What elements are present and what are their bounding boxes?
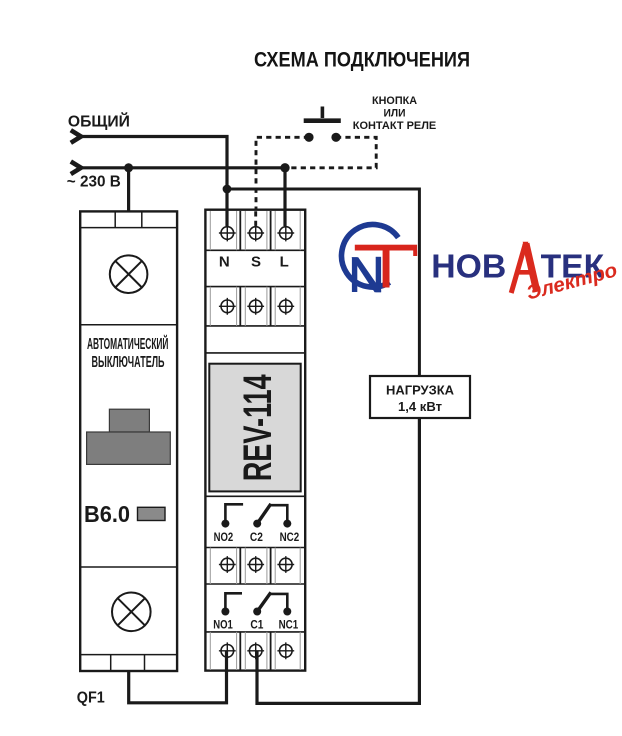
svg-text:КНОПКА: КНОПКА <box>372 95 417 107</box>
svg-text:ОБЩИЙ: ОБЩИЙ <box>68 111 130 130</box>
svg-text:C1: C1 <box>250 619 264 631</box>
svg-text:B6.0: B6.0 <box>84 501 130 527</box>
svg-text:NC2: NC2 <box>280 532 300 544</box>
svg-text:НАГРУЗКА: НАГРУЗКА <box>386 384 454 398</box>
svg-text:C2: C2 <box>250 532 263 544</box>
svg-text:1,4 кВт: 1,4 кВт <box>398 400 442 414</box>
svg-text:REV-114: REV-114 <box>236 374 280 482</box>
svg-text:ИЛИ: ИЛИ <box>384 108 406 120</box>
svg-text:КОНТАКТ РЕЛЕ: КОНТАКТ РЕЛЕ <box>353 120 437 132</box>
svg-text:QF1: QF1 <box>77 689 105 706</box>
svg-text:ВЫКЛЮЧАТЕЛЬ: ВЫКЛЮЧАТЕЛЬ <box>92 354 165 371</box>
svg-text:NO2: NO2 <box>214 532 234 544</box>
svg-text:НОВ: НОВ <box>431 249 506 286</box>
svg-text:NC1: NC1 <box>279 619 299 631</box>
svg-text:~ 230 В: ~ 230 В <box>67 174 121 191</box>
svg-text:NO1: NO1 <box>213 619 233 631</box>
svg-text:S: S <box>251 254 261 271</box>
svg-text:N: N <box>219 254 230 271</box>
svg-text:АВТОМАТИЧЕСКИЙ: АВТОМАТИЧЕСКИЙ <box>87 335 169 353</box>
svg-text:СХЕМА ПОДКЛЮЧЕНИЯ: СХЕМА ПОДКЛЮЧЕНИЯ <box>254 47 470 71</box>
svg-text:L: L <box>280 254 289 271</box>
